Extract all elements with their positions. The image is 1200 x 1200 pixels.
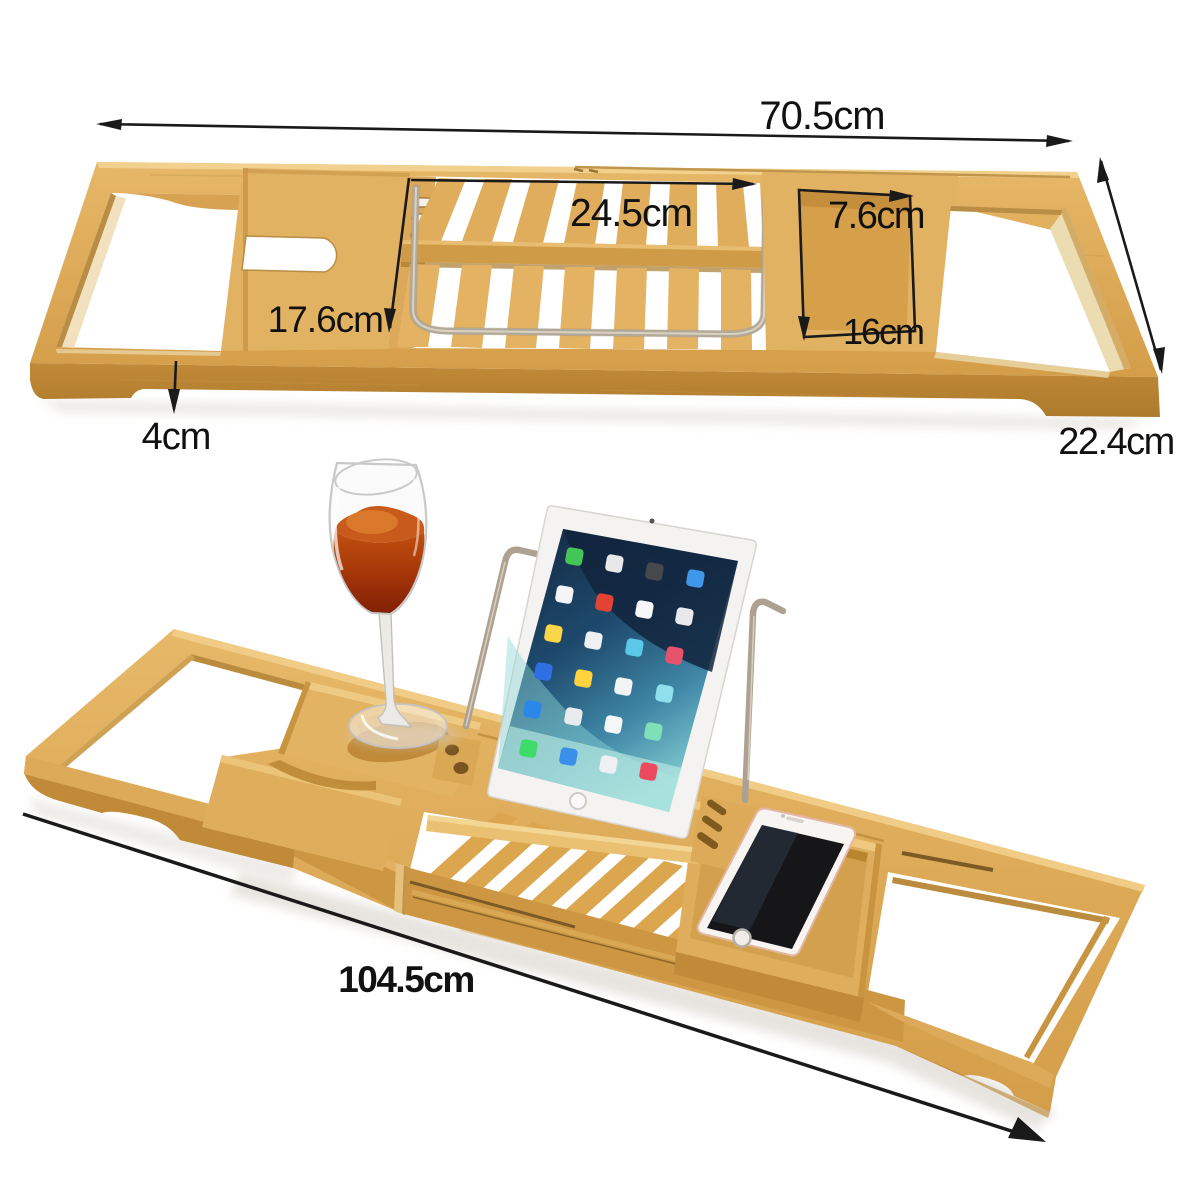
svg-text:70.5cm: 70.5cm xyxy=(759,94,884,138)
svg-text:16cm: 16cm xyxy=(843,311,923,352)
svg-text:17.6cm: 17.6cm xyxy=(268,299,383,340)
svg-text:24.5cm: 24.5cm xyxy=(570,192,692,235)
svg-text:4cm: 4cm xyxy=(142,416,211,458)
svg-text:104.5cm: 104.5cm xyxy=(338,959,474,1000)
svg-text:7.6cm: 7.6cm xyxy=(828,195,924,237)
svg-text:22.4cm: 22.4cm xyxy=(1058,421,1174,463)
